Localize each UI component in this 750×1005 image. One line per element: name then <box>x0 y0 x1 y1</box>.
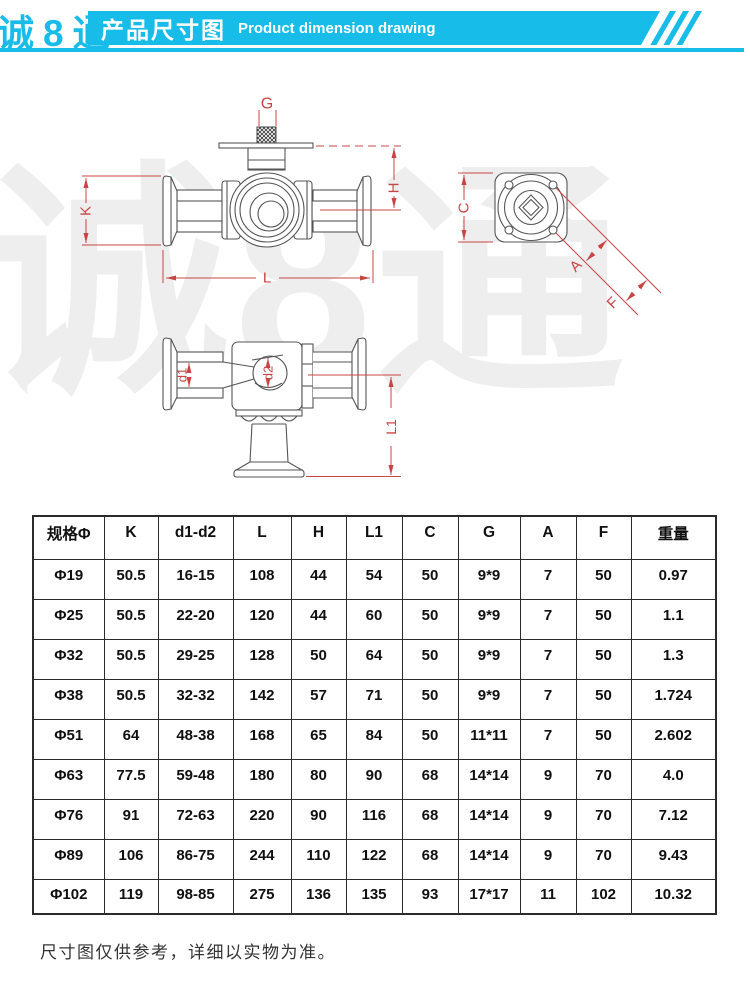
table-cell: 110 <box>291 839 346 879</box>
table-cell: 116 <box>346 799 402 839</box>
table-cell: 106 <box>104 839 158 879</box>
table-cell: 50 <box>576 639 631 679</box>
table-cell: Φ102 <box>33 879 104 914</box>
table-row: Φ516448-3816865845011*117502.602 <box>33 719 716 759</box>
table-row: Φ8910686-752441101226814*149709.43 <box>33 839 716 879</box>
table-cell: Φ89 <box>33 839 104 879</box>
table-cell: 50 <box>402 679 458 719</box>
table-cell: 9*9 <box>458 639 520 679</box>
table-cell: 119 <box>104 879 158 914</box>
table-cell: 98-85 <box>158 879 233 914</box>
footer-note: 尺寸图仅供参考，详细以实物为准。 <box>40 938 336 963</box>
table-cell: 70 <box>576 799 631 839</box>
table-cell: Φ19 <box>33 559 104 599</box>
table-cell: 77.5 <box>104 759 158 799</box>
table-cell: Φ25 <box>33 599 104 639</box>
table-cell: 71 <box>346 679 402 719</box>
table-cell: 50 <box>402 639 458 679</box>
table-cell: 108 <box>233 559 291 599</box>
table-body: Φ1950.516-151084454509*97500.97Φ2550.522… <box>33 559 716 914</box>
table-cell: 10.32 <box>631 879 716 914</box>
table-cell: 14*14 <box>458 839 520 879</box>
table-cell: 11*11 <box>458 719 520 759</box>
table-cell: 50.5 <box>104 599 158 639</box>
table-cell: 50 <box>291 639 346 679</box>
column-header: 规格Φ <box>33 516 104 559</box>
column-header: F <box>576 516 631 559</box>
table-cell: 7 <box>520 639 576 679</box>
table-cell: 1.724 <box>631 679 716 719</box>
dim-label-g: G <box>261 96 273 113</box>
table-row: Φ2550.522-201204460509*97501.1 <box>33 599 716 639</box>
table-cell: 50 <box>402 559 458 599</box>
table-cell: 7 <box>520 679 576 719</box>
table-cell: 9*9 <box>458 679 520 719</box>
table-cell: 70 <box>576 839 631 879</box>
table-cell: 9*9 <box>458 559 520 599</box>
column-header: L <box>233 516 291 559</box>
table-cell: Φ38 <box>33 679 104 719</box>
table-cell: 64 <box>346 639 402 679</box>
table-cell: 65 <box>291 719 346 759</box>
column-header: L1 <box>346 516 402 559</box>
table-cell: 9 <box>520 799 576 839</box>
table-cell: 44 <box>291 599 346 639</box>
dim-label-l: L <box>263 270 271 287</box>
table-cell: 90 <box>346 759 402 799</box>
column-header: A <box>520 516 576 559</box>
table-cell: 72-63 <box>158 799 233 839</box>
table-cell: 244 <box>233 839 291 879</box>
table-cell: 136 <box>291 879 346 914</box>
table-row: Φ6377.559-4818080906814*149704.0 <box>33 759 716 799</box>
dim-label-c: C <box>456 202 473 213</box>
table-cell: 93 <box>402 879 458 914</box>
table-cell: 50 <box>576 679 631 719</box>
table-cell: 11 <box>520 879 576 914</box>
table-cell: 90 <box>291 799 346 839</box>
table-cell: 50.5 <box>104 679 158 719</box>
header-divider-line <box>0 48 744 52</box>
table-cell: 2.602 <box>631 719 716 759</box>
table-cell: 142 <box>233 679 291 719</box>
table-cell: 135 <box>346 879 402 914</box>
table-cell: 7 <box>520 559 576 599</box>
title-banner: 产品尺寸图 Product dimension drawing <box>88 11 660 45</box>
table-row: Φ10211998-852751361359317*171110210.32 <box>33 879 716 914</box>
table-cell: 9*9 <box>458 599 520 639</box>
table-cell: 14*14 <box>458 799 520 839</box>
table-cell: 0.97 <box>631 559 716 599</box>
column-header: C <box>402 516 458 559</box>
table-cell: 22-20 <box>158 599 233 639</box>
table-cell: 84 <box>346 719 402 759</box>
table-cell: 68 <box>402 839 458 879</box>
column-header: K <box>104 516 158 559</box>
table-cell: 4.0 <box>631 759 716 799</box>
table-cell: 50.5 <box>104 639 158 679</box>
table-cell: 54 <box>346 559 402 599</box>
table-cell: 59-48 <box>158 759 233 799</box>
table-cell: 50.5 <box>104 559 158 599</box>
table-cell: 220 <box>233 799 291 839</box>
table-cell: 102 <box>576 879 631 914</box>
dimension-table: 规格ΦKd1-d2LHL1CGAF重量 Φ1950.516-1510844545… <box>32 515 717 915</box>
table-cell: 1.3 <box>631 639 716 679</box>
dim-label-d2: d2 <box>261 366 276 380</box>
table-cell: 7 <box>520 719 576 759</box>
table-cell: 29-25 <box>158 639 233 679</box>
table-cell: 64 <box>104 719 158 759</box>
dim-label-d1: d1 <box>175 368 190 382</box>
table-cell: 70 <box>576 759 631 799</box>
table-row: Φ769172-63220901166814*149707.12 <box>33 799 716 839</box>
table-cell: 68 <box>402 799 458 839</box>
table-cell: 14*14 <box>458 759 520 799</box>
page-subtitle: Product dimension drawing <box>238 20 436 37</box>
table-cell: 80 <box>291 759 346 799</box>
column-header: 重量 <box>631 516 716 559</box>
table-cell: 50 <box>576 559 631 599</box>
table-cell: 60 <box>346 599 402 639</box>
dim-label-l1: L1 <box>383 419 399 435</box>
table-cell: Φ63 <box>33 759 104 799</box>
table-cell: 57 <box>291 679 346 719</box>
table-cell: 16-15 <box>158 559 233 599</box>
table-cell: 68 <box>402 759 458 799</box>
table-cell: 91 <box>104 799 158 839</box>
table-cell: 9 <box>520 759 576 799</box>
table-cell: 7.12 <box>631 799 716 839</box>
front-view-drawing: K L H G <box>78 96 403 287</box>
column-header: H <box>291 516 346 559</box>
table-cell: Φ76 <box>33 799 104 839</box>
valve-dimension-drawing: K L H G <box>0 55 750 515</box>
table-cell: 50 <box>402 719 458 759</box>
table-cell: Φ32 <box>33 639 104 679</box>
table-cell: 120 <box>233 599 291 639</box>
table-cell: 86-75 <box>158 839 233 879</box>
table-cell: 17*17 <box>458 879 520 914</box>
table-cell: 128 <box>233 639 291 679</box>
table-cell: 50 <box>576 599 631 639</box>
table-header-row: 规格ΦKd1-d2LHL1CGAF重量 <box>33 516 716 559</box>
table-cell: 168 <box>233 719 291 759</box>
dim-label-h: H <box>386 183 403 194</box>
column-header: d1-d2 <box>158 516 233 559</box>
table-cell: 50 <box>402 599 458 639</box>
table-cell: 275 <box>233 879 291 914</box>
table-cell: 44 <box>291 559 346 599</box>
table-cell: 50 <box>576 719 631 759</box>
table-row: Φ1950.516-151084454509*97500.97 <box>33 559 716 599</box>
table-cell: 9 <box>520 839 576 879</box>
table-cell: 48-38 <box>158 719 233 759</box>
table-cell: 180 <box>233 759 291 799</box>
table-cell: 1.1 <box>631 599 716 639</box>
table-row: Φ3250.529-251285064509*97501.3 <box>33 639 716 679</box>
table-cell: Φ51 <box>33 719 104 759</box>
product-dimension-page: 诚8通 产品尺寸图 Product dimension drawing 诚8通 <box>0 0 750 1005</box>
table-cell: 32-32 <box>158 679 233 719</box>
top-view-drawing: C A F <box>456 173 662 315</box>
table-row: Φ3850.532-321425771509*97501.724 <box>33 679 716 719</box>
page-title: 产品尺寸图 <box>101 11 226 45</box>
table-cell: 9.43 <box>631 839 716 879</box>
dim-label-k: K <box>78 206 95 216</box>
table-cell: 122 <box>346 839 402 879</box>
column-header: G <box>458 516 520 559</box>
side-view-drawing: d1 d2 L1 <box>163 338 401 477</box>
table-cell: 7 <box>520 599 576 639</box>
